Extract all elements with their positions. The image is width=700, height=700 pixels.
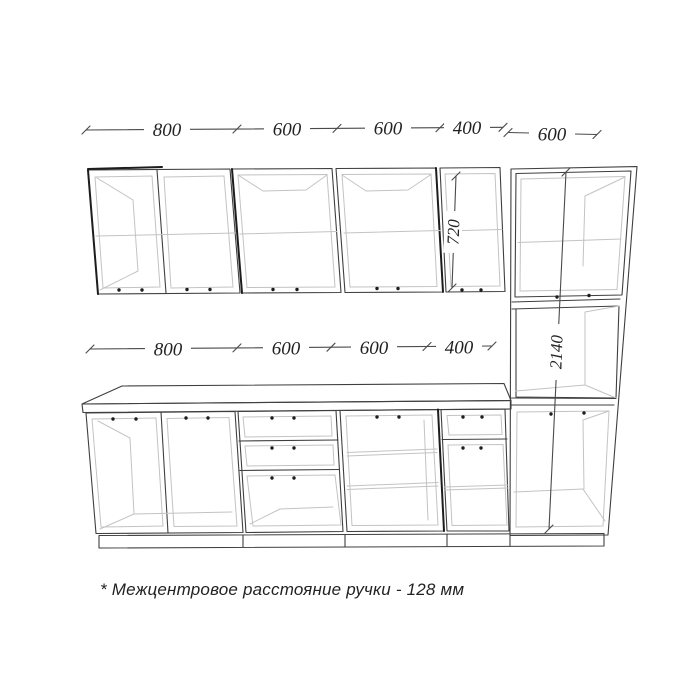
base-drawer-cabinet-600 <box>238 411 343 533</box>
dim-label-top-600b: 600 <box>374 119 403 140</box>
dim-label-mid-400: 400 <box>445 337 474 358</box>
dim-label-mid-800: 800 <box>154 339 183 360</box>
kitchen-elevation-page: 720 2140 <box>0 0 700 700</box>
dim-tall-cabinet-height: 2140 <box>545 168 570 533</box>
dim-label-top-600a: 600 <box>273 120 302 141</box>
base-cabinet-400 <box>441 409 509 531</box>
dim-tall-cabinet-width: 600 <box>504 125 601 146</box>
dim-label-720: 720 <box>444 218 464 245</box>
dim-row-middle: 800 600 600 400 <box>86 337 496 360</box>
dim-label-mid-600a: 600 <box>272 339 301 360</box>
dim-label-top-800: 800 <box>153 120 182 141</box>
wall-cabinet-600-a <box>232 169 341 294</box>
tall-cabinet-base <box>514 411 609 527</box>
dim-label-top-400: 400 <box>453 118 482 139</box>
dim-row-top: 800 600 600 400 <box>82 118 507 141</box>
base-cabinet-800 <box>86 412 243 534</box>
handle-spacing-note: * Межцентровое расстояние ручки - 128 мм <box>100 580 464 600</box>
countertop <box>82 384 511 413</box>
dim-label-top-right-600: 600 <box>538 125 567 146</box>
wall-cabinet-600-b <box>336 168 443 293</box>
dim-label-2140: 2140 <box>546 334 566 369</box>
tall-cabinet <box>510 167 637 536</box>
dim-label-mid-600b: 600 <box>360 338 389 359</box>
tall-cabinet-niche <box>516 306 619 398</box>
wall-cabinet-800 <box>88 167 240 294</box>
base-cabinet-600-open <box>340 410 444 532</box>
